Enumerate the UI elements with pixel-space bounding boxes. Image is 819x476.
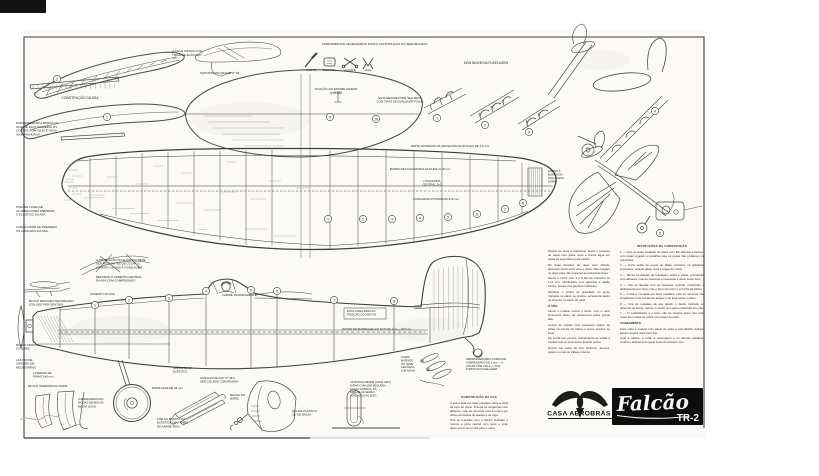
callout-number: 4 — [654, 109, 656, 113]
line-art: DE ARAME FINO — [157, 424, 180, 428]
line-art — [266, 390, 281, 410]
callout-number: 4 — [419, 216, 421, 220]
line-art — [312, 53, 317, 58]
callout-number: 1 — [106, 115, 108, 119]
column-heading: CONSTRUÇÃO DA ASA — [450, 395, 508, 399]
column-heading: INSTRUÇÕES DA CONSTRUÇÃO — [620, 244, 704, 248]
callout-number: 2 — [362, 217, 364, 221]
rudder-hinge — [463, 259, 469, 335]
hatch — [251, 406, 262, 421]
scan-blotch — [190, 102, 310, 138]
line-art — [195, 42, 281, 62]
label-saddle1: A INSTALAÇÃO DO ELÁSTICO DEVESER FEITA A… — [96, 257, 146, 269]
line-art — [580, 391, 608, 407]
wood-grain — [64, 162, 310, 236]
label-motorlinha: MOTOR DE BORRACHA 4×6 FIOS DE 1×4 — 450 … — [342, 327, 412, 331]
line-art — [124, 398, 128, 410]
column-subheading: ACABAMENTO — [620, 321, 704, 325]
instruction-paragraph: Monte o motor com 4 a 6 fios de borracha… — [548, 276, 610, 288]
line-art — [218, 46, 244, 60]
line-art — [641, 227, 644, 230]
line-art — [62, 148, 556, 249]
line-art — [527, 110, 548, 125]
instruction-paragraph: 4 — Una as laterais com as cavernas cent… — [620, 283, 704, 291]
instruction-paragraph: 6 — Una as metades da asa dando o diedro… — [620, 302, 704, 310]
label-1: TESOURA — [322, 68, 336, 72]
line-art: FERRAMENTAS NECESSÁRIAS PARA A CONSTRUÇÃ… — [322, 41, 428, 46]
callout-number: 6 — [276, 289, 278, 293]
line-art: TIRAS DE ELÁSTICO — [172, 53, 202, 57]
line-art: PARTE ANTERIOR DA ASA EM BALSA (FOLHA) D… — [411, 144, 490, 148]
label-montagem_fus: MONTAGEM DA FUSELAGEM — [464, 61, 509, 65]
label-parts_r: AMORTECEDORES: FUROS DECOMPENSADO DE 2 m… — [466, 357, 506, 371]
stop-wire — [420, 380, 444, 386]
fuselage-assembly-steps — [424, 88, 560, 130]
razor-blade-icon — [305, 53, 317, 67]
instruction-paragraph: Dê duas demãos de dope bem diluído, deix… — [548, 263, 610, 275]
line-art — [548, 42, 592, 98]
glue-tube-icon — [324, 58, 335, 66]
scan-blotch — [570, 50, 630, 70]
line-art — [28, 324, 32, 328]
line-art — [674, 210, 678, 214]
line-art: PINHO 5×5 mm — [33, 375, 54, 379]
line-art: (COLADO POR DENTRO) — [29, 303, 63, 307]
line-art — [234, 421, 238, 425]
instruction-paragraph: 3 — Monte as laterais da fuselagem sobre… — [620, 273, 704, 281]
label-construcao_asa: CONSTRUÇÃO DA ASA — [61, 95, 99, 100]
label-3: LIXA — [365, 68, 371, 72]
pencil-scribble — [20, 415, 60, 420]
line-art — [100, 211, 528, 246]
line-art — [344, 58, 356, 66]
tail-assembly-3d — [548, 24, 668, 162]
label-wingtip: PRESO ÀBORDA DAASA (BALSADURA) — [548, 169, 564, 184]
gear-strut — [118, 360, 130, 385]
label-wing_bf: BORDA DE FUGA EM BALSA DURA 3×15 mm — [390, 167, 451, 171]
line-art — [33, 312, 37, 345]
callout-number: 3 — [168, 296, 170, 300]
line-art: DURA) — [548, 180, 557, 184]
instructions-right-column: INSTRUÇÕES DA CONSTRUÇÃO1 — Cole as duas… — [620, 244, 704, 384]
callout-number: 9 — [329, 115, 331, 119]
line-art — [424, 88, 466, 114]
line-art — [552, 391, 580, 407]
line-art: POSIÇÃO DO MOTOR — [347, 312, 376, 317]
line-art — [684, 206, 702, 210]
panel-rib-line — [115, 70, 120, 75]
line-art — [470, 90, 519, 123]
tail-skid-hook — [465, 338, 482, 357]
label-motorstick: FIXE AS PONTAS DOELÁSTICO COM ANÉISDE AR… — [157, 417, 188, 428]
line-art — [30, 282, 58, 288]
line-art — [577, 396, 583, 409]
line-art — [258, 386, 263, 430]
generated-line-art — [33, 50, 630, 368]
instruction-paragraph: Una as metades com o diedro indicado e r… — [450, 418, 508, 430]
assembly-step-1 — [424, 88, 466, 114]
instruction-paragraph: Lance o modelo contra o vento, com o nar… — [548, 309, 610, 321]
line-art — [78, 155, 516, 161]
instruction-paragraph: 7 — O estabilizador e o leme são de vare… — [620, 311, 704, 319]
line-art: OS GANCHOS DA ASA — [16, 229, 48, 233]
line-art — [305, 57, 313, 67]
center-fold-lines — [301, 74, 310, 258]
label-bloco_rec: BLOCO RECUADO REFORÇADO(COLADO POR DENTR… — [29, 299, 74, 307]
prop-hook — [230, 425, 233, 430]
nose-hatch — [38, 316, 73, 342]
line-art — [592, 70, 652, 94]
callout-number: 6 — [476, 212, 478, 216]
callout-number: 2 — [128, 298, 130, 302]
callout-number: 1 — [327, 217, 329, 221]
line-art — [130, 401, 134, 405]
line-art: LIXA — [365, 68, 371, 72]
line-art — [573, 24, 587, 44]
label-stab1: FIXAÇÃO DO ESTABILIZADOR(FOLHA) — [315, 86, 359, 95]
tools-row — [305, 53, 373, 69]
line-art — [578, 136, 596, 144]
line-art: GILETE — [306, 68, 316, 72]
line-art: SUPORTE DE ARAME Nº 18 — [200, 71, 239, 75]
line-art: RODA LEVE DE 45 mm — [152, 386, 183, 390]
callout-number: 8 — [393, 299, 395, 303]
fin-3d — [648, 38, 667, 72]
label-bloco_frontal: BLOCO FRONTALDO NARIZ — [16, 343, 41, 351]
line-art — [324, 58, 335, 66]
callout-number: 7 — [504, 207, 506, 211]
line-art: MONTAGEM DA FUSELAGEM — [464, 61, 509, 65]
line-art: BORDA DE FUGA EM BALSA DURA 3×15 mm — [390, 167, 451, 171]
instruction-paragraph: Nunca voe perto de fios elétricos, árvor… — [548, 346, 610, 354]
line-art: TESOURA — [322, 68, 336, 72]
line-art: SOLDADAS AO EIXO — [350, 394, 376, 398]
line-art: ASSENTO DA ASA — [90, 292, 115, 296]
line-art: ASSENTO DA ASA À FUSELAGEM — [96, 265, 143, 269]
line-art — [114, 385, 151, 422]
callout-number: 3 — [528, 130, 530, 134]
line-art: FUROS DA FUSELAGEM — [466, 367, 498, 371]
line-art: NARIZ — [230, 397, 239, 401]
instruction-paragraph: Dê corda aos poucos, aumentando as volta… — [548, 336, 610, 344]
wing-plan-view — [62, 148, 556, 249]
line-art — [645, 216, 650, 224]
instruction-paragraph: Corrija as viradas com pequenos calços d… — [548, 323, 610, 335]
line-art: DA ASA COM COMPENSADO — [96, 279, 136, 283]
brand-name: CASA AEROBRÁS — [547, 409, 611, 418]
line-art: MOTOR DE BORRACHA 4×6 FIOS DE 1×4 — 450 … — [342, 327, 412, 331]
callout-number: 7 — [333, 298, 335, 302]
tiny-plane-sketch — [24, 288, 60, 292]
line-art — [576, 182, 616, 228]
label-bloco_inf: BLOCO INFERIOR DO NARIZ — [28, 384, 68, 388]
line-art: CENTRAL 3×3 — [422, 183, 441, 187]
line-art — [327, 61, 332, 64]
label-wing_top: PARTE ANTERIOR DA ASA EM BALSA (FOLHA) D… — [411, 144, 490, 148]
line-art — [116, 387, 148, 419]
label-lastro: LASTRO DECHUMBO (SENECESSÁRIO) — [16, 358, 36, 369]
line-art — [662, 206, 670, 214]
line-art — [247, 381, 296, 432]
label-lm2: FUROS ONDE SE PRENDEMOS GANCHOS DA ASA — [16, 225, 57, 233]
line-art — [479, 100, 504, 119]
scissors-icon — [342, 58, 358, 68]
label-caption: FERRAMENTAS NECESSÁRIAS PARA A CONSTRUÇÃ… — [322, 41, 428, 46]
line-art — [430, 95, 452, 110]
line-art: MACIA (OCA) — [78, 404, 96, 408]
scanned-model-plan-sheet: CASA AEROBRÁS Falcão TR-2 CONSTRUÇÃO DA … — [0, 0, 819, 476]
line-art: O ELÁSTICO DA ASA — [16, 213, 46, 217]
right-wing-3d — [615, 145, 659, 180]
callout-number: 1 — [94, 303, 96, 307]
line-art: COM TIRAS DE QUALQUER FOLHA — [377, 100, 424, 104]
line-art: NAS RANHURAS — [16, 132, 40, 136]
line-art — [594, 131, 604, 148]
line-art — [61, 133, 125, 140]
label-lm1: PINO DE LINHA DEALUMÍNIO PARA PRENDERO E… — [16, 205, 55, 217]
line-art: CONSTRUÇÃO DA ASA — [61, 95, 99, 100]
line-art: ELÁSTICO — [173, 370, 188, 374]
line-art: OU DE BALSA — [292, 413, 311, 417]
panel-rib-line — [150, 63, 155, 66]
title-block: CASA AEROBRÁS Falcão TR-2 — [547, 388, 703, 425]
nose-block-detail — [230, 381, 296, 432]
line-art: BLOCO INFERIOR DO NARIZ — [28, 384, 68, 388]
instruction-paragraph: A asa é feita em duas metades sobre a vi… — [450, 401, 508, 417]
line-art — [43, 397, 47, 424]
wing-construction-note: CONSTRUÇÃO DA ASAA asa é feita em duas m… — [450, 395, 508, 434]
line-art: SER COLADO COM RESINA — [200, 380, 238, 384]
wingtip-block — [528, 168, 542, 196]
callout-number: 2 — [56, 77, 58, 81]
callout-number: 8 — [522, 201, 524, 205]
instruction-paragraph: 1 — Cole as duas metades do plano com fi… — [620, 250, 704, 262]
callout-number: 1 — [436, 116, 438, 120]
label-roda: RODA LEVE DE 45 mm — [152, 386, 183, 390]
line-art — [637, 223, 647, 233]
callout-number: 5 — [250, 288, 252, 292]
label-motorbox: ESTA LINHA INDICA APOSIÇÃO DO MOTOR — [347, 309, 376, 317]
panel-rib-line — [161, 60, 166, 62]
label-laterais: LATERAIS DEPINHO 5×5 mm — [33, 371, 54, 379]
instructions-left-column: Depois de seca a cobertura, apare o exce… — [548, 249, 610, 386]
scan-blotch — [70, 316, 170, 344]
line-art — [580, 144, 603, 159]
label-roda_det: AS RODAS DEVEM (CADA UMA)GIRAR COM UMA P… — [350, 380, 391, 398]
line-art — [480, 97, 511, 117]
label-helice: HÉLICE PLÁSTICAOU DE BALSA — [292, 408, 317, 417]
line-art: (FOLHA) — [330, 91, 342, 95]
callout-number: 3 — [391, 217, 393, 221]
line-art — [421, 352, 440, 364]
instruction-paragraph: 5 — A asa é montada em duas metades; col… — [620, 292, 704, 300]
instruction-paragraph: Forre todo o modelo com papel de seda e … — [620, 327, 704, 335]
model-variant: TR-2 — [677, 413, 700, 424]
assembly-step-2 — [470, 90, 519, 123]
spinner — [26, 320, 33, 332]
label-wing_lt: LONGARINA POSTERIOR 3×3 mm — [413, 197, 460, 201]
rudder-stop-parts — [420, 352, 452, 386]
label-suporte: SUPORTE DOELÁSTICO — [173, 366, 193, 374]
label-bucha: BUCHA DONARIZ — [230, 393, 246, 401]
label-carenagem: CARENAGEM DASRODAS EM BALSAMACIA (OCA) — [78, 397, 104, 408]
propeller-arc — [668, 192, 674, 213]
instruction-paragraph: 2 — Corte todas as peças de balsa confor… — [620, 263, 704, 271]
label-gancho: GANCHO DE AÇO Nº 18 ASER COLADO COM RESI… — [200, 376, 238, 384]
line-art: ALICATE — [344, 68, 356, 72]
line-art: DO NARIZ — [16, 347, 30, 351]
propeller-side — [18, 306, 24, 348]
line-art — [204, 48, 272, 56]
column-subheading: O VÔO — [548, 304, 610, 308]
block-hatch — [530, 169, 542, 195]
label-2: ALICATE — [344, 68, 356, 72]
instruction-paragraph: Cole a cabine, a roda, a carenagem e os … — [620, 336, 704, 344]
line-art — [612, 117, 649, 152]
pilot-head — [222, 283, 230, 291]
label-holdown2: SUPORTE DE ARAME Nº 18 — [200, 71, 239, 75]
label-parts_l: CHAPABATENTEDO LEMEVER DETA-LHE ACIMA — [401, 355, 416, 373]
line-art — [36, 282, 70, 297]
instruction-paragraph: Verifique o centro de gravidade no ponto… — [548, 290, 610, 302]
label-wing_lc: LONGARINACENTRAL 3×3 — [422, 179, 441, 187]
label-assento: ASSENTO DA ASA — [90, 292, 115, 296]
line-art — [474, 349, 482, 357]
stab-side — [414, 303, 480, 309]
label-0: GILETE — [306, 68, 316, 72]
callout-number: 10 — [374, 117, 378, 121]
callout-number: 4 — [205, 289, 207, 293]
line-art: LONGARINA POSTERIOR 3×3 mm — [413, 197, 460, 201]
line-art: NECESSÁRIO) — [16, 365, 36, 369]
callout-number: 5 — [659, 231, 661, 235]
line-art: LHE ACIMA — [401, 369, 416, 373]
label-stab2: ESTA METADE PODE SER FEITACOM TIRAS DE Q… — [377, 96, 424, 104]
callout-number: 5 — [447, 215, 449, 219]
label-holdown1: A ASA É FIXADA COMTIRAS DE ELÁSTICO — [172, 48, 203, 57]
drawing-labels: CONSTRUÇÃO DA ASAPARA EMENDAR A BORDA DE… — [16, 41, 564, 428]
line-art — [57, 391, 76, 430]
plan-line-art: CASA AEROBRÁS Falcão TR-2 CONSTRUÇÃO DA … — [0, 0, 819, 476]
instruction-paragraph: Depois de seca a cobertura, apare o exce… — [548, 249, 610, 261]
line-art — [127, 398, 137, 408]
finished-model-3d — [569, 131, 702, 233]
label-saddle2: REFORCE O ASSENTO CENTRALDA ASA COM COMP… — [96, 275, 142, 283]
assembly-step-3 — [518, 100, 560, 130]
callout-number: 2 — [484, 123, 486, 127]
